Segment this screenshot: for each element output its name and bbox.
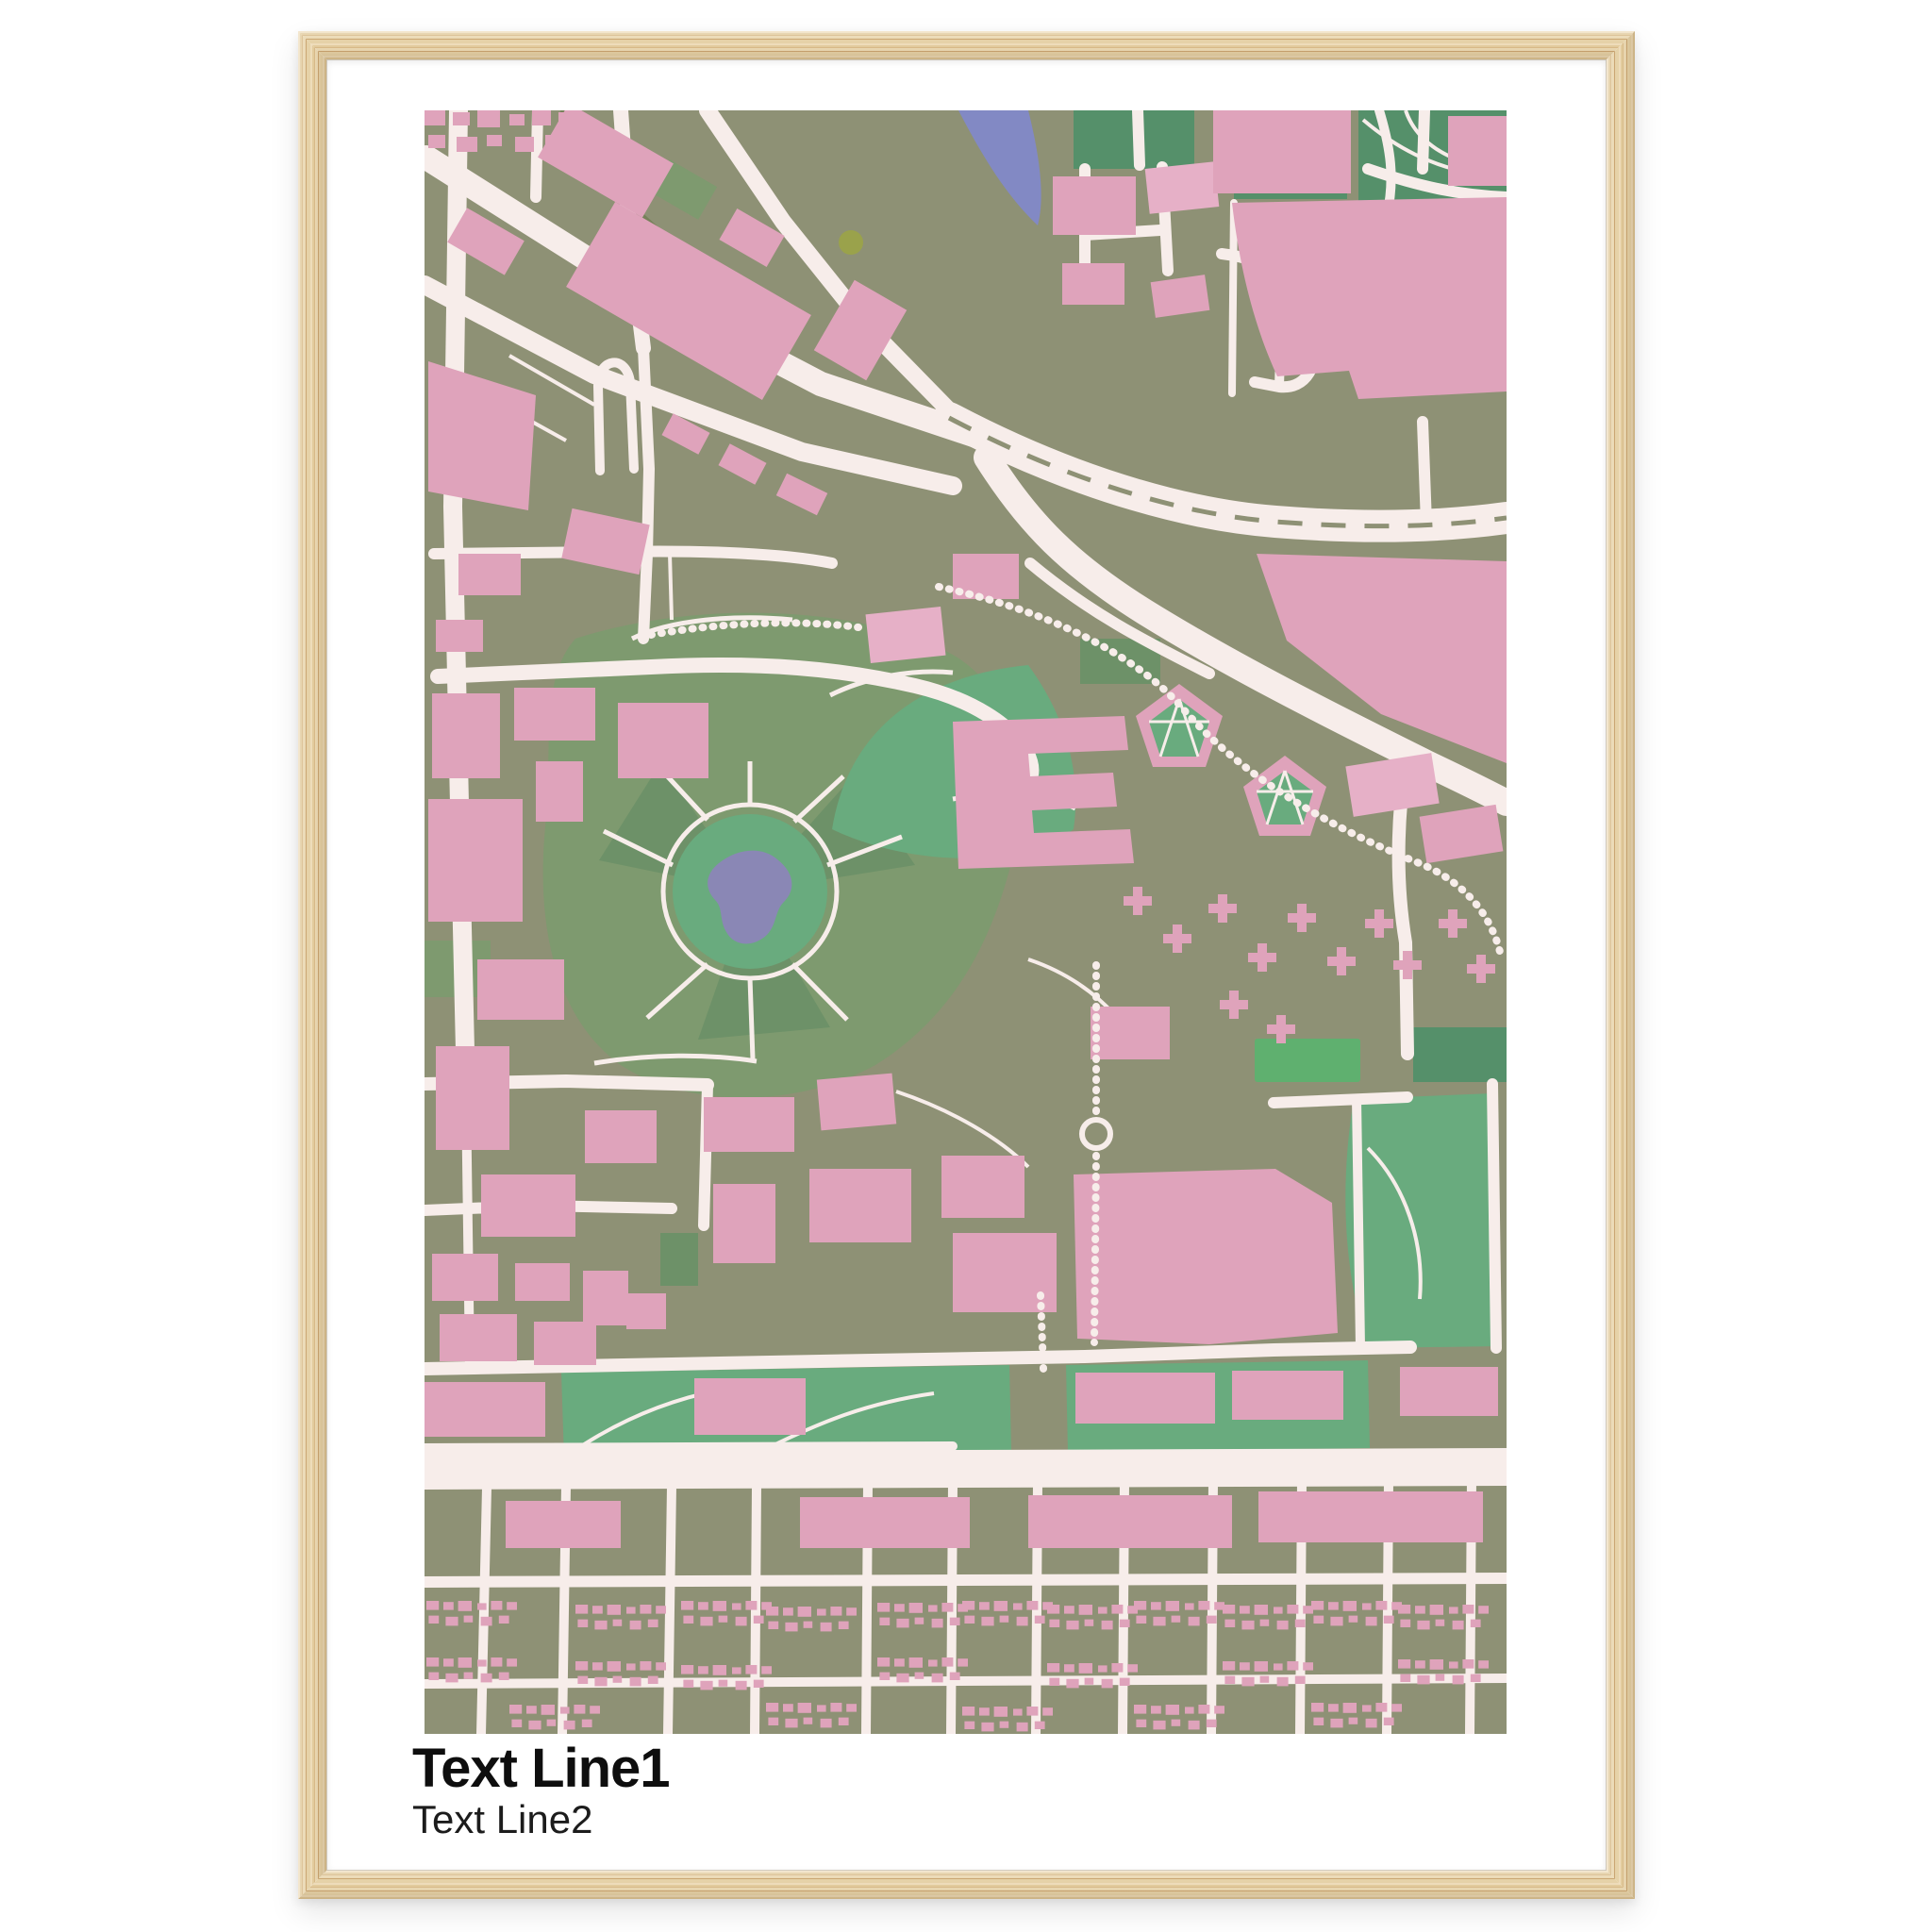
map-illustration [425,110,1507,1734]
frame-left-edge [298,31,326,1899]
frame-right-edge [1607,31,1635,1899]
poster-mat: Text Line1 Text Line2 [326,59,1607,1871]
picture-frame: Text Line1 Text Line2 [298,31,1635,1899]
frame-top-edge [298,31,1635,59]
poster-title: Text Line1 [412,1740,670,1797]
poster-subtitle: Text Line2 [412,1797,670,1842]
poster-caption: Text Line1 Text Line2 [412,1740,670,1842]
roundabout [1082,1120,1110,1148]
page-background: Text Line1 Text Line2 [0,0,1932,1932]
sports-field [1255,1039,1360,1082]
frame-bottom-edge [298,1871,1635,1899]
stadium-grounds [1345,1093,1500,1348]
